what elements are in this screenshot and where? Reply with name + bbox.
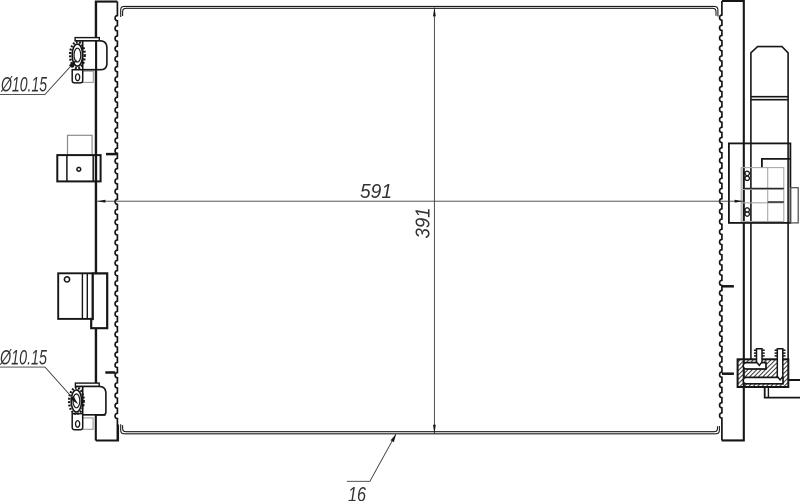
svg-text:Ø10.15: Ø10.15 (0, 74, 47, 97)
svg-text:391: 391 (413, 208, 435, 239)
svg-text:16: 16 (348, 484, 366, 501)
svg-text:591: 591 (360, 181, 392, 203)
svg-text:Ø10.15: Ø10.15 (0, 347, 47, 370)
